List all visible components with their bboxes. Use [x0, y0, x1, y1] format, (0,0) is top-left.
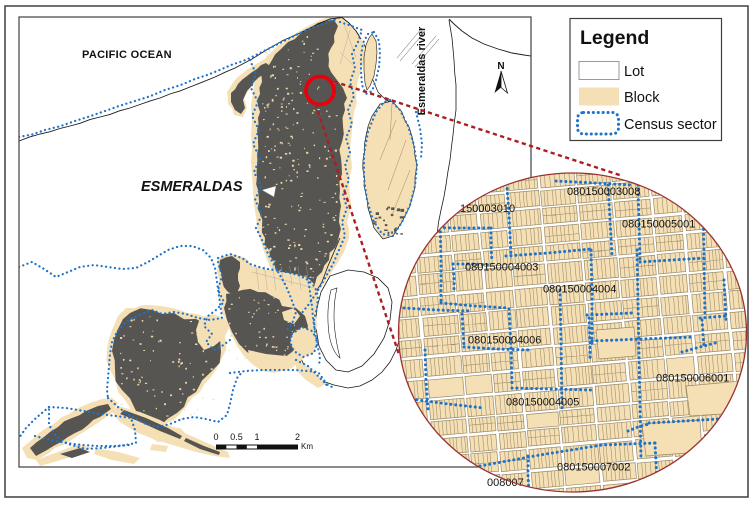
svg-text:N: N	[497, 61, 504, 72]
svg-text:ESMERALDAS: ESMERALDAS	[141, 179, 243, 195]
svg-text:080150006001: 080150006001	[656, 373, 729, 385]
svg-text:0: 0	[213, 432, 218, 442]
svg-text:080150004006: 080150004006	[468, 335, 541, 347]
svg-text:080150007002: 080150007002	[557, 462, 630, 474]
svg-text:080150003008: 080150003008	[567, 186, 640, 198]
svg-text:1: 1	[254, 432, 259, 442]
svg-text:Census sector: Census sector	[624, 117, 717, 133]
svg-text:080150004003: 080150004003	[465, 262, 538, 274]
svg-text:080150005001: 080150005001	[622, 219, 695, 231]
svg-text:Lot: Lot	[624, 64, 644, 80]
svg-text:Esmeraldas river: Esmeraldas river	[416, 26, 428, 115]
svg-text:2: 2	[295, 432, 300, 442]
svg-text:080150004005: 080150004005	[506, 397, 579, 409]
svg-text:008007: 008007	[487, 477, 524, 489]
svg-text:080150004004: 080150004004	[543, 284, 616, 296]
svg-text:Legend: Legend	[580, 27, 649, 49]
svg-text:PACIFIC OCEAN: PACIFIC OCEAN	[82, 49, 172, 61]
svg-text:Km: Km	[301, 442, 313, 451]
svg-text:0.5: 0.5	[230, 432, 243, 442]
svg-text:Block: Block	[624, 90, 660, 106]
